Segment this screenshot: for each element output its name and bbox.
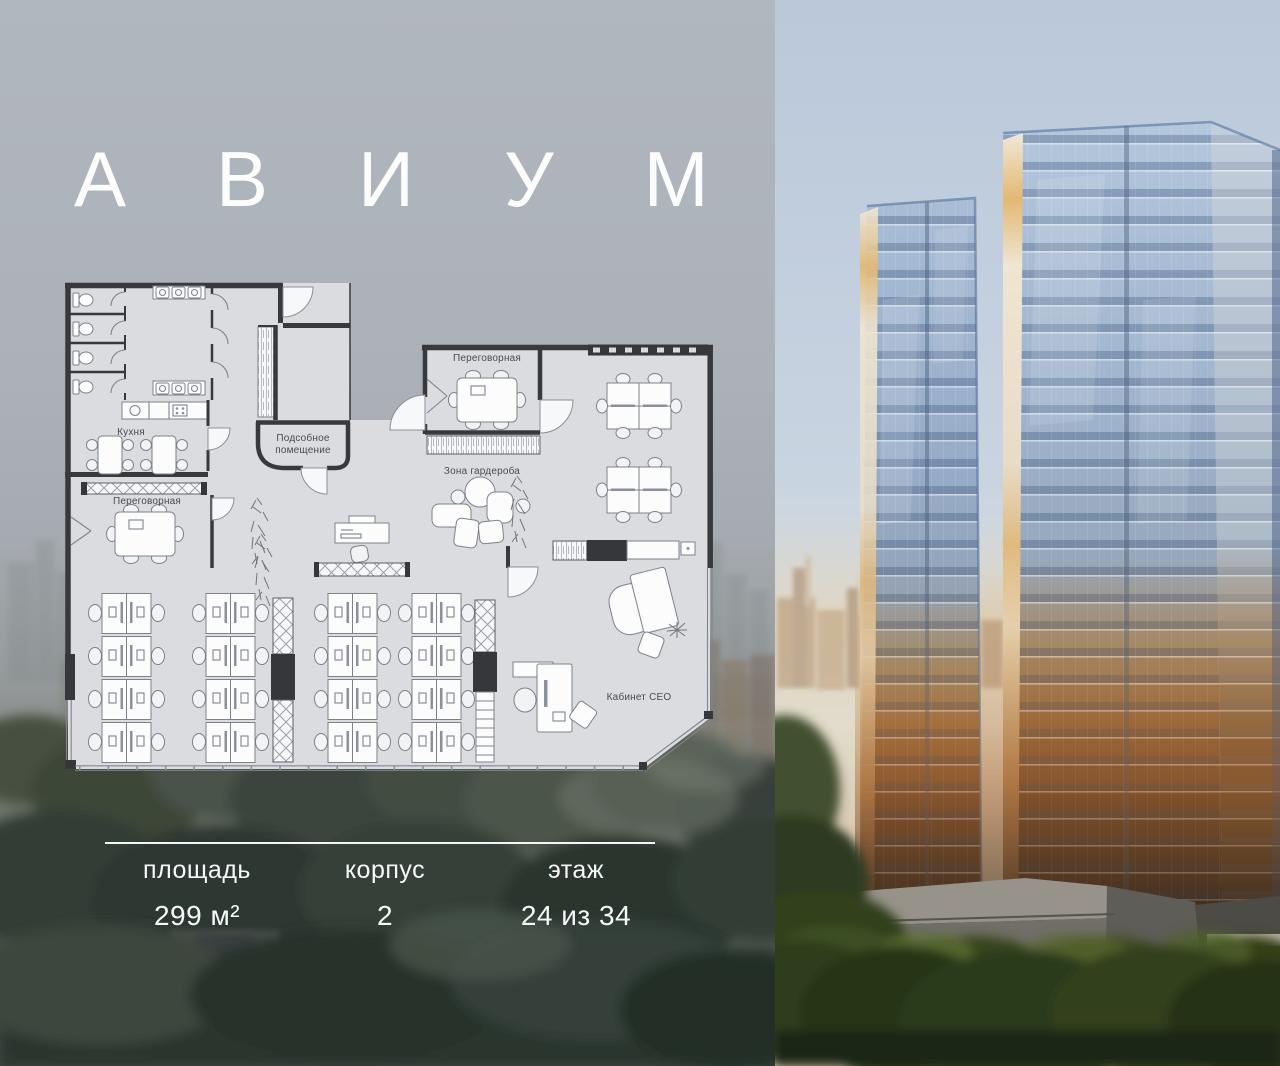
building-photo (775, 0, 1280, 1066)
info-field-floor: этаж 24 из 34 (471, 856, 681, 932)
building-photo-art (775, 0, 1280, 1066)
storage-console (553, 540, 695, 561)
info-field-area: площадь 299 м² (102, 856, 292, 932)
info-divider-line (105, 842, 655, 844)
plan-panel: АВИУМ (0, 0, 775, 1066)
info-value-building: 2 (300, 900, 470, 932)
label-meeting-left: Переговорная (113, 496, 181, 507)
label-ceo: Кабинет CEO (607, 691, 672, 703)
label-kitchen: Кухня (117, 427, 145, 438)
info-field-building: корпус 2 (300, 856, 470, 932)
floor-plan: Кухня Переговорная Подсобное помещение П… (65, 280, 715, 775)
label-utility-2: помещение (275, 445, 331, 456)
info-value-area: 299 м² (102, 900, 292, 932)
info-label-floor: этаж (471, 856, 681, 885)
info-label-area: площадь (102, 856, 292, 885)
info-value-floor: 24 из 34 (471, 900, 681, 932)
page: АВИУМ (0, 0, 1280, 1066)
label-utility-1: Подсобное (276, 432, 329, 444)
overlay-foreground (0, 910, 775, 1066)
brand-logo: АВИУМ (74, 134, 799, 225)
label-wardrobe: Зона гардероба (444, 465, 520, 477)
label-meeting-top: Переговорная (453, 353, 521, 364)
info-label-building: корпус (300, 856, 470, 885)
